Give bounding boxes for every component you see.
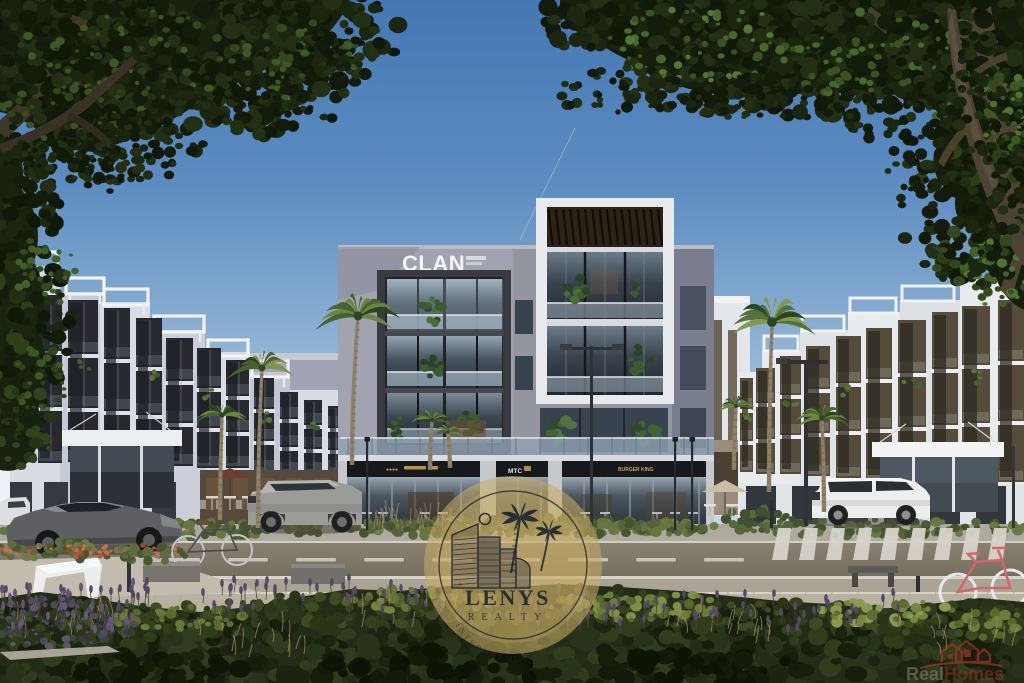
svg-text:●●●●: ●●●● <box>386 467 398 473</box>
svg-text:MTC: MTC <box>508 468 522 475</box>
svg-text:BURGER KING: BURGER KING <box>618 467 654 473</box>
